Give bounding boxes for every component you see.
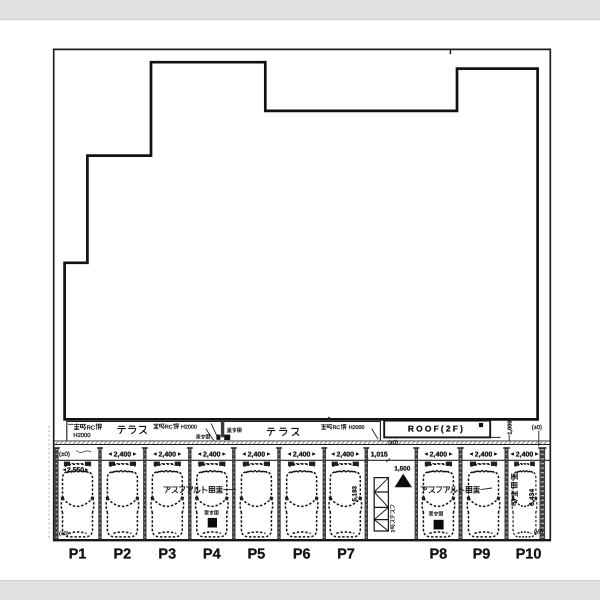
svg-text:RC: RC — [333, 425, 341, 431]
svg-text:2,400: 2,400 — [475, 451, 493, 458]
svg-text:P8: P8 — [430, 547, 448, 563]
svg-text:H2000: H2000 — [349, 425, 365, 431]
svg-text:(±0): (±0) — [59, 531, 69, 537]
svg-text:2,400: 2,400 — [516, 451, 534, 458]
svg-text:(±0): (±0) — [532, 424, 542, 431]
svg-text:ROOF(2F): ROOF(2F) — [408, 424, 465, 434]
svg-text:2,400: 2,400 — [337, 451, 355, 458]
svg-text:P9: P9 — [473, 547, 491, 563]
svg-text:2,400: 2,400 — [248, 451, 266, 458]
svg-text:P4: P4 — [203, 547, 221, 563]
svg-text:2,400: 2,400 — [430, 451, 448, 458]
svg-text:2,400: 2,400 — [203, 451, 221, 458]
svg-text:6,434: 6,434 — [529, 489, 536, 506]
svg-text:P5: P5 — [248, 547, 266, 563]
svg-text:(±0): (±0) — [388, 439, 398, 446]
svg-text:P6: P6 — [293, 547, 311, 563]
svg-text:RC: RC — [87, 425, 95, 432]
svg-text:(±0): (±0) — [59, 451, 70, 458]
svg-text:RC: RC — [165, 425, 173, 431]
svg-text:2,400: 2,400 — [114, 451, 132, 458]
svg-text:P1: P1 — [69, 547, 87, 563]
svg-text:P3: P3 — [158, 547, 176, 563]
svg-text:P7: P7 — [337, 547, 355, 563]
svg-text:H2000: H2000 — [181, 425, 197, 431]
svg-text:P10: P10 — [516, 547, 542, 563]
svg-text:2,550: 2,550 — [67, 467, 84, 474]
svg-text:2,400: 2,400 — [159, 451, 177, 458]
svg-text:3: 3 — [390, 530, 396, 533]
svg-text:H2000: H2000 — [73, 432, 90, 439]
svg-text:1,000: 1,000 — [508, 421, 514, 435]
svg-text:5,193: 5,193 — [352, 485, 359, 501]
svg-text:1,500: 1,500 — [394, 465, 410, 472]
svg-text:1,015: 1,015 — [371, 451, 388, 458]
svg-text:2,400: 2,400 — [293, 451, 311, 458]
svg-text:P2: P2 — [114, 547, 132, 563]
